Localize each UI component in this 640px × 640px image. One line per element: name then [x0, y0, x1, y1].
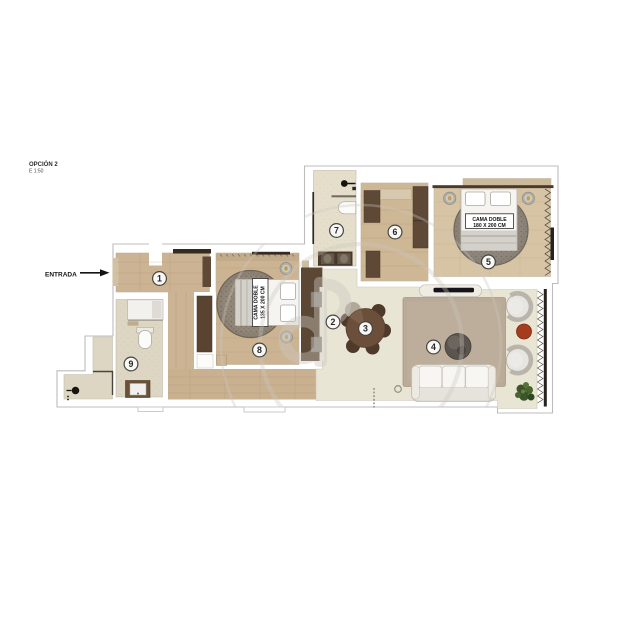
svg-text:2: 2 — [331, 317, 336, 327]
svg-text:7: 7 — [334, 226, 339, 236]
svg-text:5: 5 — [486, 257, 491, 267]
svg-text:3: 3 — [363, 324, 368, 334]
svg-text:8: 8 — [257, 345, 262, 355]
svg-text:CAMA DOBLE: CAMA DOBLE — [254, 285, 260, 320]
svg-text:CAMA DOBLE: CAMA DOBLE — [472, 217, 507, 223]
svg-text:4: 4 — [431, 342, 436, 352]
svg-text:9: 9 — [129, 359, 134, 369]
svg-text:1: 1 — [157, 274, 162, 284]
svg-text:OPCIÓN 2: OPCIÓN 2 — [29, 160, 58, 168]
svg-text:180 X 200 CM: 180 X 200 CM — [473, 223, 506, 229]
svg-text:ENTRADA: ENTRADA — [45, 271, 77, 278]
svg-text:E 1:50: E 1:50 — [29, 169, 44, 175]
svg-text:6: 6 — [393, 227, 398, 237]
